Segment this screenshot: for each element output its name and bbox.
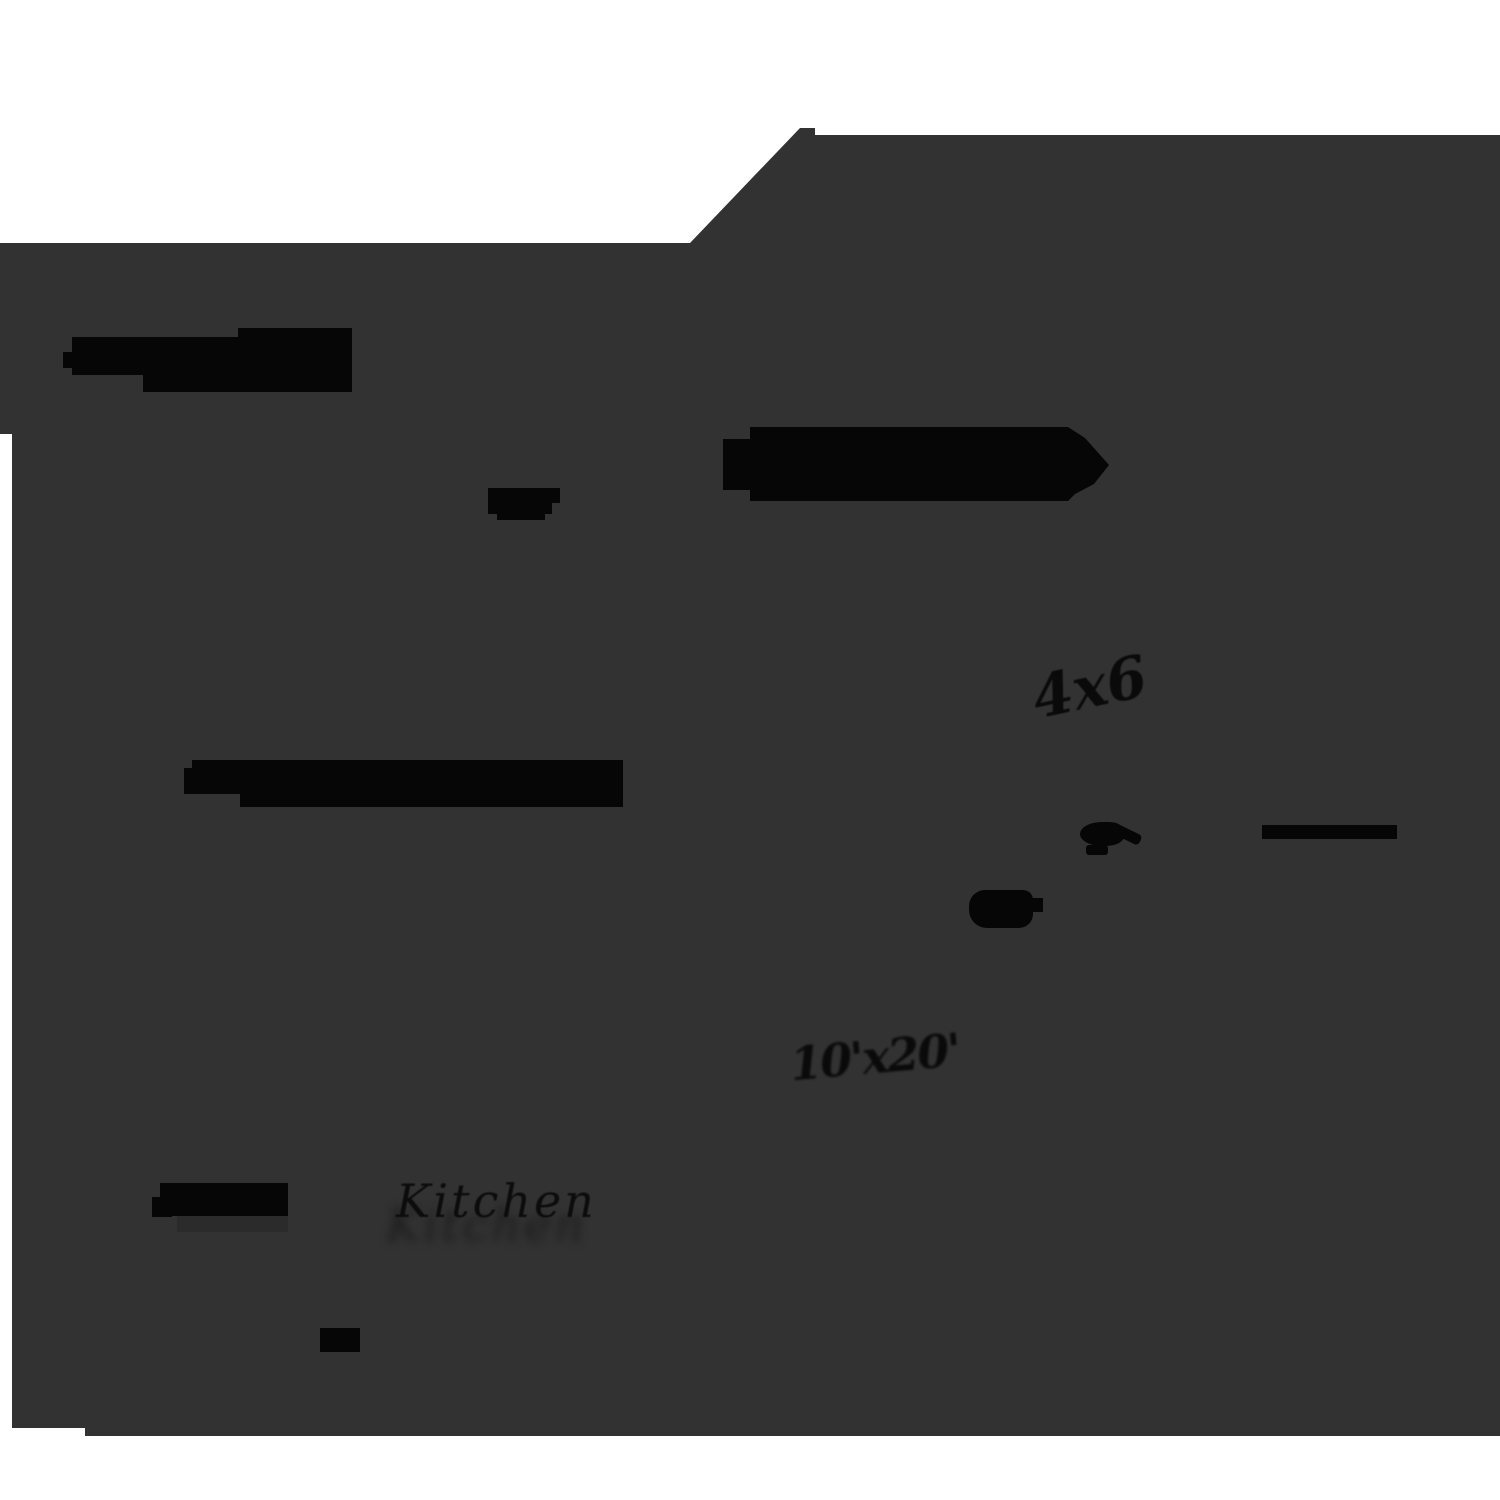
redacted-bar-small xyxy=(152,1197,172,1217)
handwritten-size-note: 10'x20' xyxy=(788,1027,961,1088)
redacted-bar-small xyxy=(160,1183,288,1216)
scanned-sketch-page: 4x6 10'x20' Kitchen xyxy=(0,0,1500,1500)
redacted-bar-arrow xyxy=(723,427,1113,501)
redacted-bar-wide xyxy=(184,760,623,807)
ruler-line-mark xyxy=(1262,825,1397,839)
rounded-ink-blob xyxy=(969,890,1033,928)
kitchen-room-label: Kitchen xyxy=(396,1178,597,1224)
redacted-scribble-blob xyxy=(238,328,352,392)
sketch-sheet-silhouette xyxy=(0,0,1500,1500)
comma-ink-mark xyxy=(1086,845,1108,855)
redacted-scribble-blob xyxy=(143,367,238,392)
bar-shadow-smudge xyxy=(177,1216,288,1232)
rounded-ink-blob xyxy=(1030,898,1043,912)
tiny-rectangle-mark xyxy=(320,1328,360,1352)
